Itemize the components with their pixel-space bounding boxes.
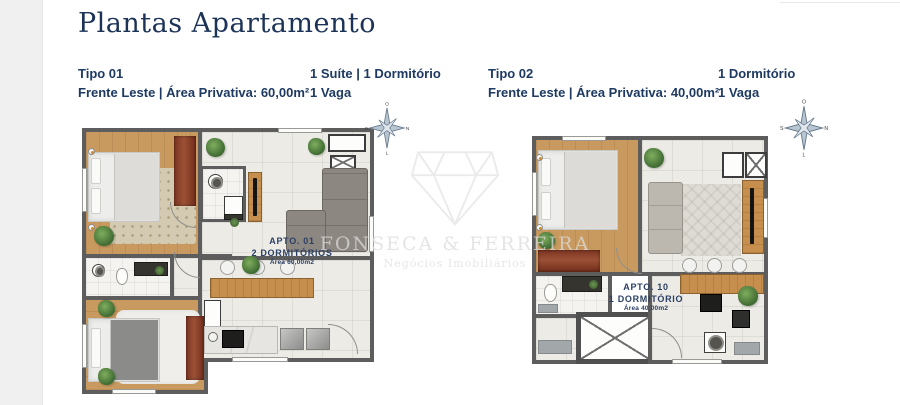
- apto-number: Apto. 10: [623, 282, 668, 292]
- sofa: [648, 182, 683, 254]
- kitchen-counter: [210, 278, 314, 298]
- floor-plans-page: Plantas Apartamento Tipo 01 Frente Leste…: [0, 0, 900, 405]
- svg-text:O: O: [802, 100, 806, 106]
- washer-icon: [208, 174, 223, 189]
- plant-icon: [738, 286, 758, 306]
- bath-mat: [224, 214, 243, 220]
- svg-text:L: L: [386, 150, 389, 155]
- unit2-feature-line1: 1 Dormitório: [718, 64, 795, 83]
- window: [562, 136, 606, 141]
- diamond-logo-icon: [405, 140, 505, 228]
- blanket: [110, 320, 158, 380]
- floor-plan-apto-01: Apto. 01 2 Dormitórios Área 60,00m2: [82, 128, 374, 394]
- wardrobe: [538, 250, 600, 272]
- wardrobe: [186, 316, 204, 380]
- pillow: [541, 192, 551, 220]
- plant-icon: [94, 226, 114, 246]
- unit1-feature-line1: 1 Suíte | 1 Dormitório: [310, 64, 441, 83]
- rug: [681, 184, 741, 256]
- window: [82, 168, 87, 212]
- shower-mat: [538, 304, 558, 313]
- window: [532, 172, 537, 216]
- stool-icon: [220, 260, 235, 275]
- unit1-front-area: Frente Leste | Área Privativa: 60,00m²: [78, 83, 309, 102]
- oven-icon: [732, 310, 750, 328]
- service-balcony: [532, 314, 580, 364]
- washer-icon: [704, 332, 726, 353]
- counter-module: [306, 328, 330, 350]
- svg-text:O: O: [385, 101, 389, 107]
- window: [369, 216, 374, 252]
- compass-rose-icon: O L S N: [364, 101, 410, 155]
- balcony-mat: [538, 340, 572, 354]
- floor-plan-apto-10: Apto. 10 1 Dormitório Área 40,00m2: [532, 136, 768, 364]
- apto-area: Área 40,00m2: [598, 305, 694, 313]
- svg-text:N: N: [406, 126, 410, 132]
- blanket: [564, 152, 616, 228]
- toilet-icon: [544, 284, 557, 302]
- cooktop-icon: [700, 294, 722, 312]
- plan-label-apto-01: Apto. 01 2 Dormitórios Área 60,00m2: [244, 236, 340, 268]
- window: [278, 128, 322, 133]
- stool-icon: [732, 258, 747, 273]
- plant-icon: [308, 138, 325, 155]
- page-title: Plantas Apartamento: [78, 8, 376, 39]
- stool-icon: [707, 258, 722, 273]
- apto-number: Apto. 01: [269, 236, 314, 246]
- ceiling-light-icon: [88, 148, 95, 155]
- unit2-type-label: Tipo 02: [488, 64, 719, 83]
- svg-text:S: S: [780, 126, 784, 132]
- apto-area: Área 60,00m2: [244, 259, 340, 267]
- pillow: [91, 188, 101, 214]
- plant-icon: [644, 148, 664, 168]
- unit2-front-area: Frente Leste | Área Privativa: 40,00m²: [488, 83, 719, 102]
- unit1-feature-line2: 1 Vaga: [310, 83, 441, 102]
- utility-box: [722, 152, 744, 178]
- svg-text:S: S: [365, 126, 368, 132]
- plan-label-apto-10: Apto. 10 1 Dormitório Área 40,00m2: [598, 282, 694, 314]
- unit1-type-label: Tipo 01: [78, 64, 309, 83]
- compass-rose-icon: O L S N: [779, 99, 829, 157]
- counter-module: [280, 328, 304, 350]
- plant-icon: [206, 138, 225, 157]
- window: [672, 359, 722, 364]
- unit1-features: 1 Suíte | 1 Dormitório 1 Vaga: [310, 64, 441, 102]
- cooktop-icon: [222, 330, 244, 348]
- stairwell-x-icon: [581, 317, 649, 359]
- unit2-spec: Tipo 02 Frente Leste | Área Privativa: 4…: [488, 64, 719, 102]
- elevator-box: [745, 152, 767, 178]
- pillow: [541, 158, 551, 186]
- toilet-icon: [116, 268, 128, 285]
- bath-vanity: [134, 262, 168, 276]
- sink-counter: [224, 196, 243, 216]
- entry-closet: [328, 134, 366, 152]
- svg-text:N: N: [824, 126, 828, 132]
- tv-icon: [750, 188, 754, 244]
- ceiling-light-icon: [536, 154, 543, 161]
- shower-icon: [92, 264, 105, 277]
- stairwell: [576, 312, 654, 364]
- window: [112, 389, 156, 394]
- plant-icon: [538, 232, 555, 249]
- ceiling-light-icon: [88, 224, 95, 231]
- blanket: [114, 154, 158, 220]
- bathroom-2: [82, 254, 176, 300]
- left-gray-strip: [0, 0, 43, 405]
- bath-vanity: [562, 276, 602, 292]
- stool-icon: [682, 258, 697, 273]
- wardrobe: [174, 136, 196, 206]
- apto-rooms: 2 Dormitórios: [251, 248, 332, 258]
- unit2-features: 1 Dormitório 1 Vaga: [718, 64, 795, 102]
- pillow: [91, 158, 101, 184]
- plant-icon: [98, 368, 115, 385]
- plant-icon: [98, 300, 115, 317]
- unit1-spec: Tipo 01 Frente Leste | Área Privativa: 6…: [78, 64, 309, 102]
- top-edge-line: [780, 2, 900, 3]
- kitchen-mat: [734, 342, 760, 355]
- window: [232, 357, 288, 362]
- apto-rooms: 1 Dormitório: [609, 294, 683, 304]
- tv-icon: [253, 178, 257, 216]
- svg-text:L: L: [803, 152, 806, 157]
- sink-icon: [208, 332, 218, 342]
- ceiling-light-icon: [536, 224, 543, 231]
- window: [82, 324, 87, 368]
- pillow: [91, 328, 101, 368]
